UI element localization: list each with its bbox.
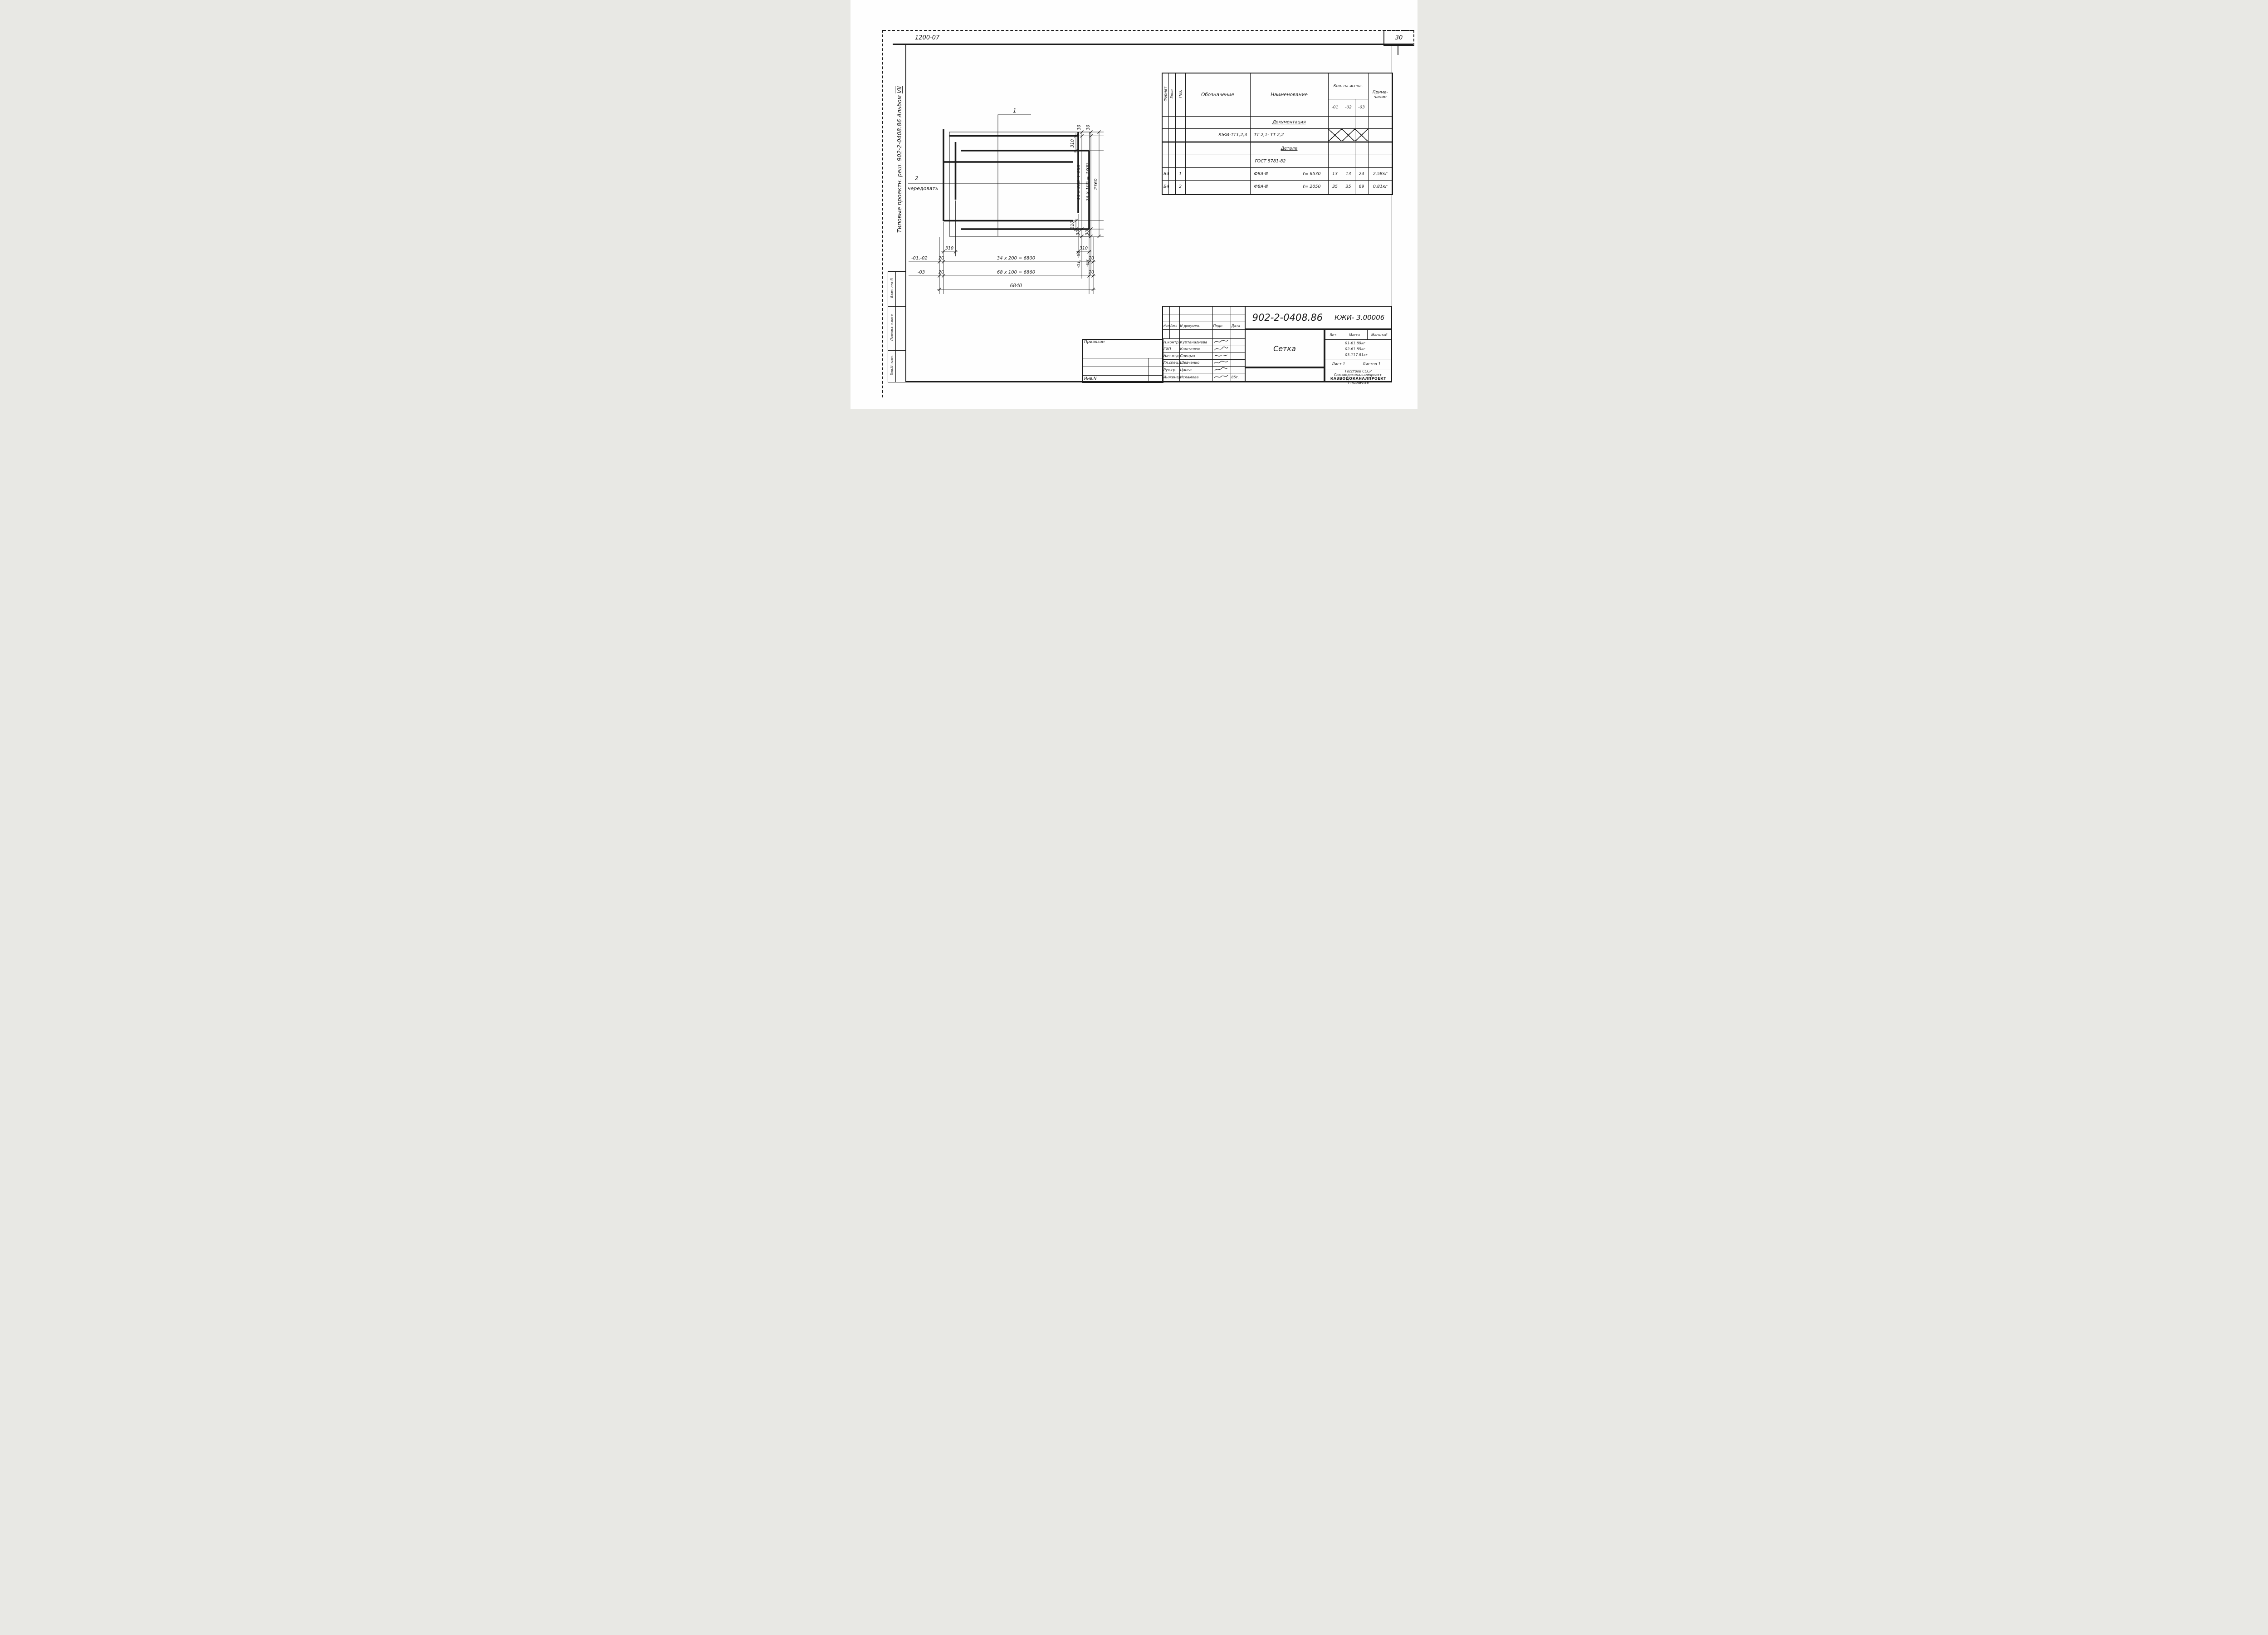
- callout-lines: [908, 115, 1089, 236]
- spec-cross-cell: [1328, 129, 1342, 142]
- dim-310-bottom-left: 310: [945, 246, 953, 251]
- spec-format-2: Б4: [1162, 181, 1168, 193]
- tb-list-number: Лист 1: [1325, 359, 1352, 369]
- tb-role: Нач.отд.: [1163, 352, 1179, 359]
- tb-header-list: Лист: [1169, 322, 1179, 329]
- top-cut-line: [883, 30, 1413, 31]
- chain1-30-bottom: 30: [1076, 230, 1081, 235]
- spec-row: ГОСТ 5781-82: [1162, 155, 1393, 168]
- tb-name: Цанга: [1179, 367, 1212, 373]
- spec-header-zone: Зона: [1168, 73, 1175, 116]
- stamp-empty-cell: [896, 272, 906, 307]
- spec-poz-1: 1: [1175, 168, 1185, 181]
- spec-k3-1: 24: [1355, 168, 1368, 181]
- dimension-ticks: [938, 131, 1101, 291]
- row1-main-dim: 34 x 200 = 6800: [997, 256, 1035, 261]
- spec-naimen-tt: ТТ 2,1- ТТ 2,2: [1250, 129, 1328, 142]
- spec-header-primechanie: Приме- чание: [1368, 73, 1393, 116]
- stamp-vzam-label: Взам. инв.N: [890, 278, 894, 298]
- drawing-title: Сетка: [1273, 344, 1296, 353]
- attach-inv-cell: Инв.N: [1082, 375, 1136, 382]
- row1-20-right: 20: [1089, 256, 1094, 261]
- spec-naimen-2: Ф8А-Ⅲ ℓ= 2050: [1250, 181, 1328, 193]
- specification-table: Формат Зона Поз. Обозначение Наименовани…: [1162, 73, 1393, 195]
- mass-area: 01-61.89кг 02-61.89кг 03-117.81кг: [1325, 340, 1391, 359]
- spec-prim-2: 0,81кг: [1368, 181, 1393, 193]
- doc-code: КЖИ- 3.00006: [1334, 313, 1384, 322]
- spec-header-k02: -02: [1342, 99, 1355, 116]
- row2-20-right: 20: [1089, 270, 1094, 275]
- dim-30-b: 30: [1086, 125, 1091, 130]
- chain2-variant-label: -03: [1085, 259, 1090, 267]
- mass-02: 02-61.89кг: [1345, 346, 1391, 352]
- dim-30-a: 30: [1077, 125, 1082, 130]
- stamp-label-cell: Инв.N подл.: [888, 351, 896, 382]
- spec-header-format: Формат: [1162, 73, 1168, 116]
- spec-poz-2: 2: [1175, 181, 1185, 193]
- signature-scribble: [1213, 367, 1229, 372]
- tb-header-scale: Масштаб: [1368, 330, 1391, 339]
- spec-k3-2: 69: [1355, 181, 1368, 193]
- chain2-30-bottom: 30: [1085, 230, 1090, 235]
- spec-naimen-1: Ф8А-Ⅲ ℓ= 6530: [1250, 168, 1328, 181]
- row2-main-dim: 68 x 100 = 6860: [997, 270, 1035, 275]
- spec-row: Б4 2 Ф8А-Ⅲ ℓ= 2050 35 35 69 0,81кг: [1162, 181, 1393, 193]
- signature-scribble: [1213, 339, 1229, 344]
- total-vertical-dim: 2360: [1094, 178, 1099, 190]
- organization-block: Госстрой СССР Союзводоканалниипроект. КА…: [1325, 369, 1391, 385]
- spec-format-1: Б4: [1162, 168, 1168, 181]
- spec-cross-cell: [1342, 129, 1355, 142]
- org-line-4: г. Алма-Ата: [1325, 381, 1391, 385]
- stamp-podpis-label: Подпись и дата: [890, 314, 894, 341]
- callout-1-label: 1: [1013, 108, 1017, 114]
- row1-variant-label: -01,-02: [911, 256, 928, 261]
- mass-01: 01-61.89кг: [1345, 340, 1391, 346]
- stamp-label-cell: Взам. инв.N: [888, 272, 896, 307]
- spec-obozn-kji: КЖИ-ТТ1,2,3: [1185, 129, 1250, 142]
- stamp-label-cell: Подпись и дата: [888, 307, 896, 351]
- album-text-roman: VII: [896, 86, 903, 93]
- spec-row: КЖИ-ТТ1,2,3 ТТ 2,1- ТТ 2,2: [1162, 129, 1393, 142]
- tb-name: Каштелюк: [1179, 346, 1212, 352]
- callout-2-note: чередовать: [908, 186, 938, 191]
- tb-header-lit: Лит.: [1325, 330, 1342, 339]
- tb-signature-cell: [1212, 367, 1231, 373]
- spec-k1-2: 35: [1328, 181, 1342, 193]
- tb-role: Гл.спец.: [1163, 359, 1179, 366]
- titleblock-left: Изм Лист N докумен. Подп. Дата Н.контр. …: [1162, 306, 1246, 382]
- spec-section-documentation: Документация: [1250, 116, 1328, 129]
- tb-header-mass: Масса: [1342, 330, 1368, 339]
- titleblock-empty-cell: [1245, 367, 1325, 382]
- chain2-text: 23 x 100 = 2300: [1085, 163, 1090, 201]
- tb-name: Шевченко: [1179, 359, 1212, 366]
- chain1-text: 11 x 200 + 100: [1076, 165, 1081, 200]
- spec-cross-cell: [1355, 129, 1368, 142]
- spec-row: Детали: [1162, 142, 1393, 155]
- lit-mass-scale-header: Лит. Масса Масштаб: [1325, 330, 1391, 340]
- row2-variant-label: -03: [918, 270, 925, 275]
- dim-310-bottom-right: 310: [1070, 221, 1075, 229]
- spec-section-details: Детали: [1250, 142, 1328, 155]
- dimension-lines: [909, 132, 1104, 294]
- tb-signature-cell: [1212, 352, 1231, 359]
- rebar-bars: [943, 129, 1089, 229]
- spec-header-oboznachenie: Обозначение: [1185, 73, 1250, 116]
- tb-header-izm: Изм: [1163, 322, 1169, 329]
- tb-role: Инженер.: [1163, 373, 1179, 382]
- left-cut-line: [882, 30, 883, 397]
- list-row: Лист 1 Листов 1: [1325, 359, 1391, 369]
- tb-role: ГИП: [1163, 346, 1179, 352]
- tb-name: Исламова: [1179, 373, 1212, 382]
- total-horizontal-dim: 6840: [1010, 283, 1022, 289]
- tb-signature-cell: [1212, 373, 1231, 382]
- mesh-outline: [949, 132, 1090, 236]
- signature-scribble: [1213, 360, 1229, 365]
- spec-k2-1: 13: [1342, 168, 1355, 181]
- mass-values: 01-61.89кг 02-61.89кг 03-117.81кг: [1342, 340, 1391, 359]
- spec-k2-2: 35: [1342, 181, 1355, 193]
- tb-header-data: Дата: [1231, 322, 1245, 329]
- row1-20-left: 20: [938, 256, 944, 261]
- album-text: Типовые проектн. реш. 902-2-0408.86 Альб…: [896, 86, 903, 233]
- tb-header-podp: Подп.: [1212, 322, 1231, 329]
- page-box-tail-line: [1398, 44, 1398, 55]
- tb-listov-number: Листов 1: [1352, 359, 1391, 369]
- attach-label-cell: Привязан: [1082, 339, 1163, 358]
- mass-03: 03-117.81кг: [1345, 352, 1391, 358]
- callout-2-label: 2: [915, 175, 919, 181]
- margin-stamp-boxes: Взам. инв.N Подпись и дата Инв.N подл.: [888, 271, 906, 382]
- sheet-code: 1200-07: [915, 34, 939, 41]
- chain1-variant-label: -01, -02: [1076, 250, 1081, 268]
- spec-gost: ГОСТ 5781-82: [1250, 155, 1328, 168]
- lit-value-cell: [1325, 340, 1342, 359]
- album-text-main: Типовые проектн. реш. 902-2-0408.86 Альб…: [896, 93, 903, 232]
- tb-header-ndoc: N докумен.: [1179, 322, 1212, 329]
- titleblock-name-cell: Сетка: [1245, 329, 1325, 367]
- spec-header-kol: Кол. на испол.: [1328, 73, 1368, 99]
- row2-20-left: 20: [938, 270, 944, 275]
- tb-signature-cell: [1212, 359, 1231, 366]
- drawing-sheet: 1200-07 30 Типовые проектн. реш. 902-2-0…: [850, 0, 1417, 409]
- tb-role: Рук.гр.: [1163, 367, 1179, 373]
- signature-scribble: [1213, 353, 1229, 358]
- titleblock-doc-band: 902-2-0408.86 КЖИ- 3.00006: [1245, 306, 1392, 329]
- stamp-empty-cell: [896, 307, 906, 351]
- page-number-box: 30: [1383, 30, 1414, 46]
- stamp-empty-cell: [896, 351, 906, 382]
- page-number: 30: [1395, 34, 1403, 41]
- dim-310-top-right: 310: [1070, 139, 1075, 147]
- spec-row: Б4 1 Ф8А-Ⅲ ℓ= 6530 13 13 24 2,58кг: [1162, 168, 1393, 181]
- attachment-block: Привязан Инв.N: [1082, 339, 1163, 383]
- spec-header-k01: -01: [1328, 99, 1342, 116]
- tb-signature-cell: [1212, 346, 1231, 352]
- spec-header-k03: -03: [1355, 99, 1368, 116]
- signature-scribble: [1213, 374, 1229, 380]
- tb-date: 85г.: [1231, 373, 1245, 382]
- tb-name: Куртаналиева: [1179, 339, 1212, 346]
- dim-310-bottom-mid: 310: [1080, 246, 1088, 251]
- spec-row: [1162, 193, 1393, 195]
- spec-header-poz: Поз.: [1175, 73, 1185, 116]
- doc-number: 902-2-0408.86: [1252, 312, 1323, 323]
- album-text-wrap: Типовые проектн. реш. 902-2-0408.86 Альб…: [893, 50, 905, 269]
- frame-top-line: [893, 44, 1413, 45]
- titleblock-right: Лит. Масса Масштаб 01-61.89кг 02-61.89кг…: [1325, 329, 1392, 382]
- spec-row: Документация: [1162, 116, 1393, 129]
- tb-signature-cell: [1212, 339, 1231, 346]
- spec-k1-1: 13: [1328, 168, 1342, 181]
- stamp-inv-label: Инв.N подл.: [890, 355, 894, 375]
- spec-prim-1: 2,58кг: [1368, 168, 1393, 181]
- spec-header-naimenovanie: Наименование: [1250, 73, 1328, 116]
- signature-scribble: [1213, 346, 1229, 352]
- tb-name: Спицын: [1179, 352, 1212, 359]
- tb-role: Н.контр.: [1163, 339, 1179, 346]
